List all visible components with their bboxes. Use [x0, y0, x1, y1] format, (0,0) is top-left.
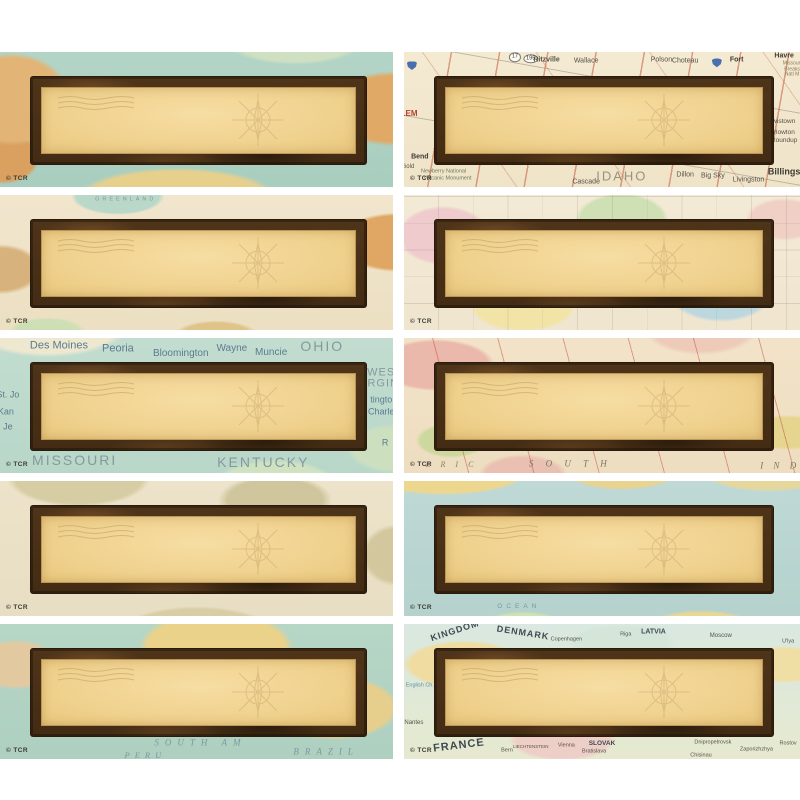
map-label: Dillon — [676, 171, 694, 178]
map-label: Des Moines — [30, 341, 88, 352]
map-label: E R I C — [426, 461, 478, 469]
map-label: Livingston — [733, 177, 765, 184]
map-label: Billings — [768, 168, 800, 177]
map-label: Copenhagen — [551, 637, 583, 643]
nameplate-frame — [30, 76, 367, 165]
board: © TCR 19517RitzvilleWallacePolsonChoteau… — [0, 0, 800, 759]
map-label: Fort — [730, 57, 744, 64]
nameplate-frame — [30, 362, 367, 451]
map-label: Havre — [774, 53, 793, 60]
nameplate-frame — [30, 219, 367, 308]
map-label: FRANCE — [433, 737, 486, 754]
postmark-lines-icon — [460, 94, 540, 112]
copyright-tcr-label: © TCR — [6, 175, 28, 182]
map-label: Gold — [404, 164, 414, 170]
map-label: ILEM — [404, 110, 418, 118]
postmark-lines-icon — [460, 237, 540, 255]
map-label: LATVIA — [641, 629, 666, 636]
compass-rose-icon — [230, 235, 286, 291]
map-label: Dnipropetrovsk — [694, 740, 731, 746]
nameplate-6-atlas-pink: E R I CS O U T HI N D © TCR — [404, 338, 800, 473]
postmark-lines-icon — [56, 666, 136, 684]
map-label: Bend — [411, 154, 429, 161]
map-label: Riga — [620, 632, 631, 638]
map-label: PERU — [125, 751, 167, 759]
map-label: SOUTH AM — [154, 738, 246, 747]
nameplate-frame — [434, 362, 774, 451]
blank-name-writing-area — [41, 516, 356, 583]
nameplate-5-midwest: Des MoinesPeoriaBloomingtonWayneMuncieOH… — [0, 338, 393, 473]
nameplate-9-south-america: SOUTH AMPERUBRAZIL © TCR — [0, 624, 393, 759]
copyright-tcr-label: © TCR — [6, 604, 28, 611]
nameplate-3-world-cream: GREENLAND © TCR — [0, 195, 393, 330]
map-label: Wallace — [574, 58, 599, 65]
postmark-lines-icon — [460, 666, 540, 684]
map-label: Choteau — [672, 58, 698, 65]
map-label: Big Sky — [701, 173, 725, 180]
compass-rose-icon — [636, 378, 692, 434]
blank-name-writing-area — [41, 87, 356, 154]
interstate-shield-icon — [712, 58, 722, 67]
map-label: Muncie — [255, 348, 287, 358]
copyright-tcr-label: © TCR — [410, 604, 432, 611]
postmark-lines-icon — [460, 380, 540, 398]
map-label: Wayne — [216, 344, 247, 354]
postmark-lines-icon — [56, 380, 136, 398]
nameplate-frame — [30, 648, 367, 737]
blank-name-writing-area — [41, 373, 356, 440]
compass-rose-icon — [230, 664, 286, 720]
copyright-tcr-label: © TCR — [410, 747, 432, 754]
map-label: Bloomington — [153, 349, 209, 359]
blank-name-writing-area — [41, 659, 356, 726]
copyright-tcr-label: © TCR — [410, 318, 432, 325]
map-label: KENTUCKY — [217, 455, 309, 469]
compass-rose-icon — [230, 378, 286, 434]
nameplate-frame — [434, 76, 774, 165]
blank-name-writing-area — [445, 373, 763, 440]
nameplate-frame — [30, 505, 367, 594]
product-image-page: © TCR 19517RitzvilleWallacePolsonChoteau… — [0, 0, 800, 800]
map-label: IDAHO — [596, 170, 647, 183]
map-label: I N D — [760, 462, 800, 471]
compass-rose-icon — [230, 521, 286, 577]
nameplate-frame — [434, 648, 774, 737]
compass-rose-icon — [636, 521, 692, 577]
postmark-lines-icon — [56, 94, 136, 112]
postmark-lines-icon — [460, 523, 540, 541]
map-label: Chisinau — [690, 754, 711, 759]
map-label: R — [382, 439, 389, 448]
postmark-lines-icon — [56, 523, 136, 541]
blank-name-writing-area — [445, 659, 763, 726]
map-label: Bern — [501, 748, 513, 754]
map-label: Vienna — [558, 743, 575, 749]
compass-rose-icon — [230, 92, 286, 148]
map-label: Kan — [0, 408, 14, 417]
nameplate-frame — [434, 505, 774, 594]
map-label: OCEAN — [497, 603, 540, 610]
map-label: MISSOURI — [32, 453, 117, 467]
copyright-tcr-label: © TCR — [6, 318, 28, 325]
nameplate-8-ocean-world: OCEAN © TCR — [404, 481, 800, 616]
compass-rose-icon — [636, 92, 692, 148]
map-label: S O U T H — [529, 459, 612, 468]
nameplate-4-pastel-states: © TCR — [404, 195, 800, 330]
nameplate-frame — [434, 219, 774, 308]
map-label: Ritzville — [533, 57, 559, 64]
postmark-lines-icon — [56, 237, 136, 255]
nameplate-7-parchment: © TCR — [0, 481, 393, 616]
map-label: Bratislava — [582, 750, 606, 756]
map-label: 17 — [509, 53, 521, 63]
map-label: BRAZIL — [293, 748, 359, 757]
map-label: Charle — [368, 408, 393, 417]
map-label: Roundup — [771, 138, 797, 145]
compass-rose-icon — [636, 664, 692, 720]
blank-name-writing-area — [41, 230, 356, 297]
map-label: Moscow — [710, 633, 732, 639]
map-label: St. Jo — [0, 390, 19, 399]
interstate-shield-icon — [407, 61, 417, 70]
nameplate-10-europe: KINGDOMDENMARKCopenhagenRigaLATVIAMoscow… — [404, 624, 800, 759]
map-label: OHIO — [300, 339, 344, 353]
blank-name-writing-area — [445, 230, 763, 297]
copyright-tcr-label: © TCR — [410, 175, 432, 182]
blank-name-writing-area — [445, 87, 763, 154]
copyright-tcr-label: © TCR — [6, 747, 28, 754]
map-label: Nantes — [404, 720, 423, 726]
blank-name-writing-area — [445, 516, 763, 583]
compass-rose-icon — [636, 235, 692, 291]
map-label: Zaporizhzhya — [740, 747, 773, 753]
map-label: tingto — [370, 396, 392, 405]
copyright-tcr-label: © TCR — [410, 461, 432, 468]
nameplate-2-idaho-road-map: 19517RitzvilleWallacePolsonChoteauFortHa… — [404, 52, 800, 187]
map-label: Peoria — [102, 343, 134, 354]
map-label: Natl M — [785, 72, 799, 77]
map-label: Polson — [651, 57, 672, 64]
map-label: SLOVAK — [589, 741, 616, 748]
map-label: KINGDOM — [430, 624, 481, 643]
map-label: Je — [3, 423, 13, 432]
map-label: DENMARK — [496, 625, 550, 642]
map-label: U'lya — [782, 639, 794, 645]
map-label: GREENLAND — [95, 198, 156, 204]
copyright-tcr-label: © TCR — [6, 461, 28, 468]
map-label: LIECHTENSTEIN — [513, 745, 549, 750]
map-label: English Ch. — [406, 683, 434, 689]
map-label: Rostov — [780, 741, 797, 747]
map-label: IRGIN — [363, 378, 393, 389]
nameplate-1-world-teal: © TCR — [0, 52, 393, 187]
